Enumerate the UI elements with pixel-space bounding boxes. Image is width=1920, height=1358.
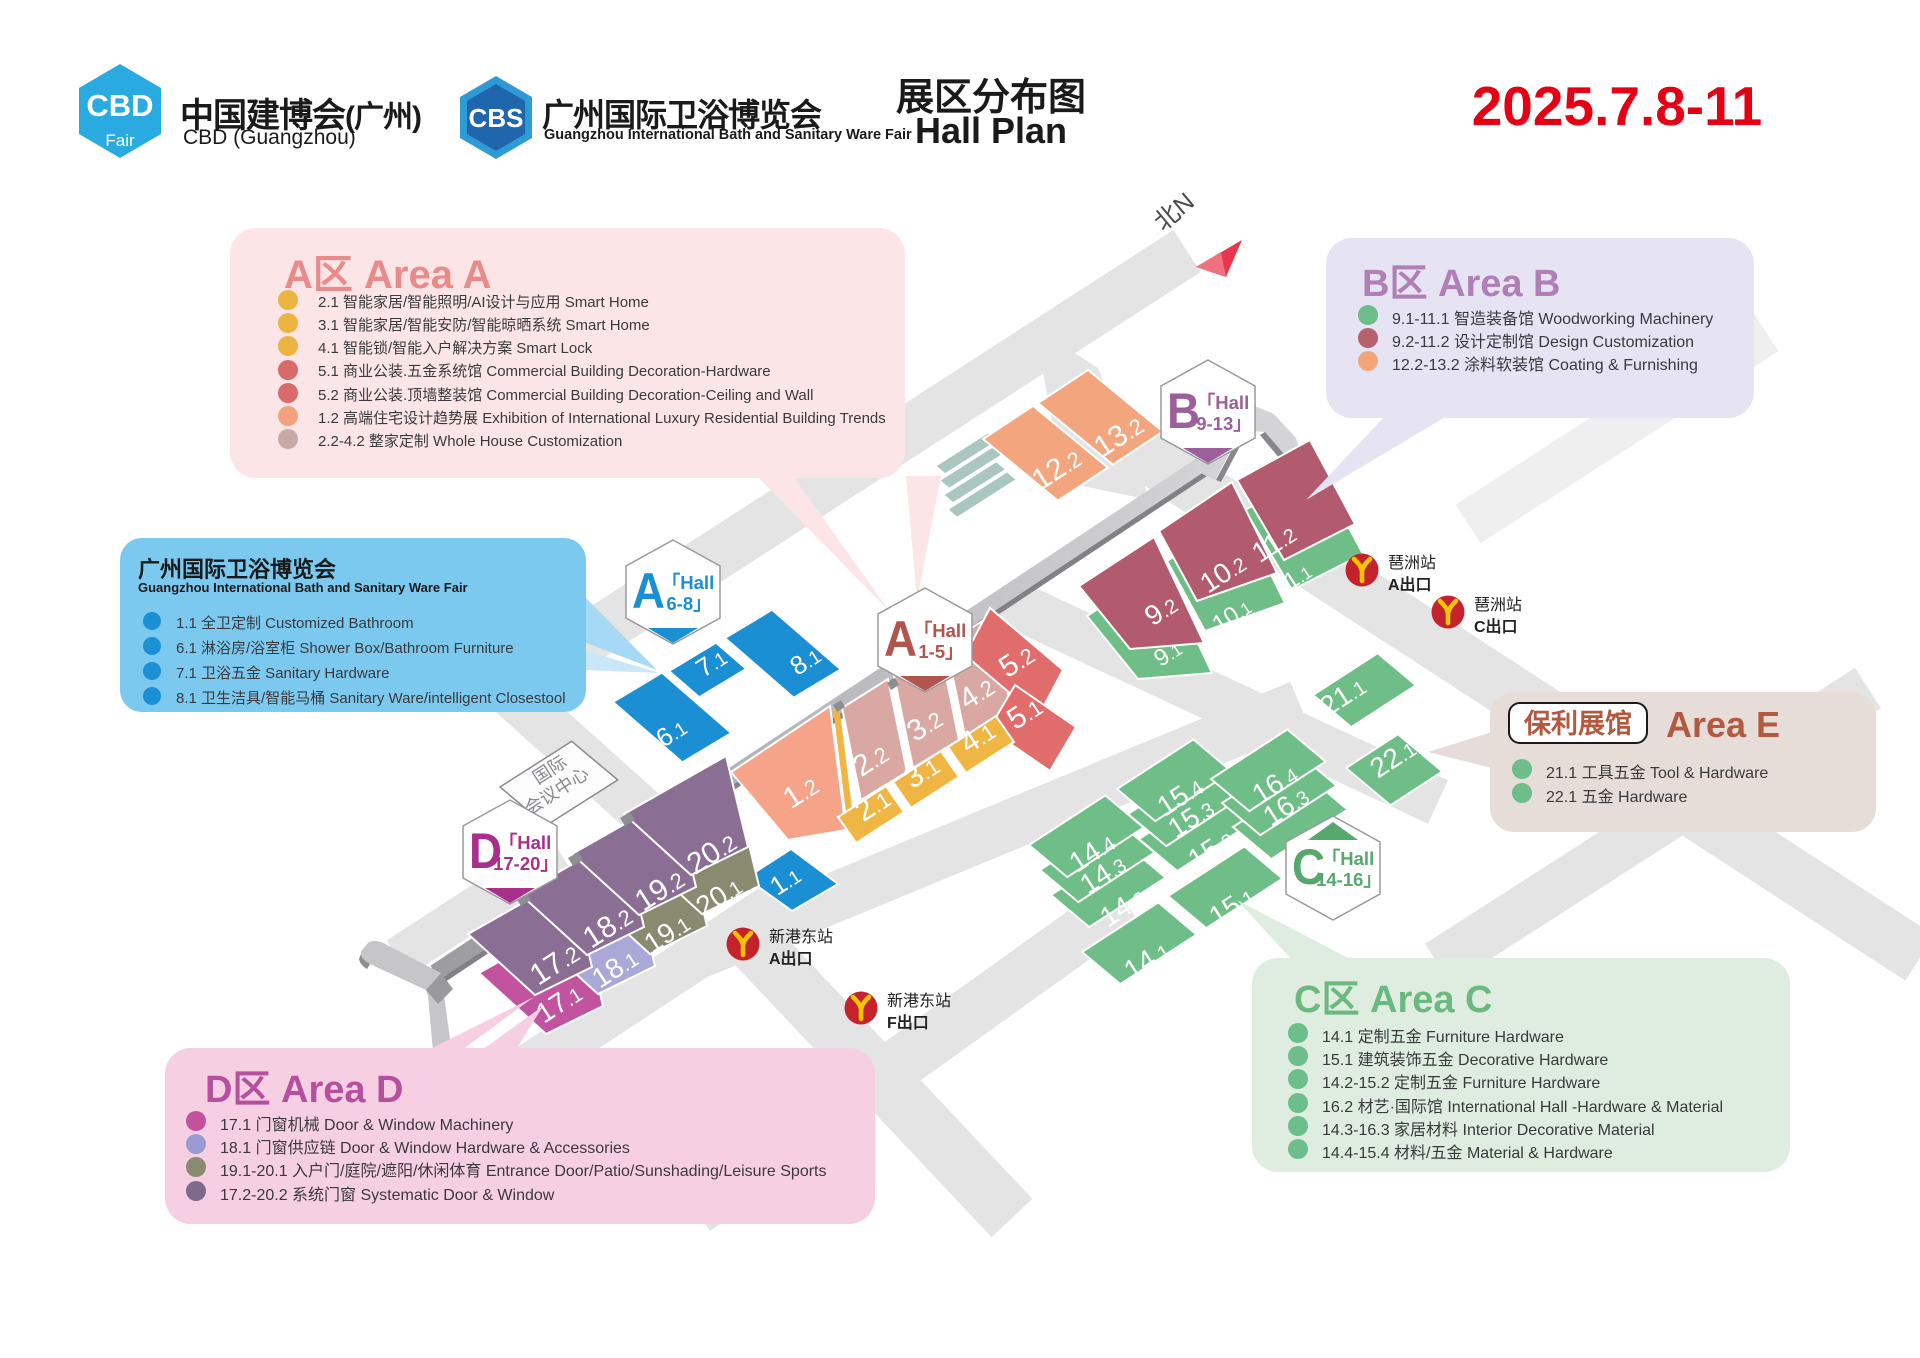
svg-text:「Hall: 「Hall: [499, 832, 551, 853]
svg-text:「Hall: 「Hall: [914, 620, 966, 641]
svg-text:6-8」: 6-8」: [666, 593, 711, 614]
svg-text:1-5」: 1-5」: [918, 641, 963, 662]
svg-text:A: A: [632, 563, 665, 619]
svg-text:17-20」: 17-20」: [493, 853, 559, 874]
svg-text:琶洲站: 琶洲站: [1474, 596, 1522, 614]
svg-text:F出口: F出口: [887, 1013, 929, 1032]
svg-text:「Hall: 「Hall: [1197, 392, 1249, 413]
svg-text:A: A: [884, 611, 917, 667]
svg-text:琶洲站: 琶洲站: [1388, 554, 1436, 572]
svg-text:「Hall: 「Hall: [662, 572, 714, 593]
svg-text:A出口: A出口: [769, 949, 813, 968]
svg-text:14-16」: 14-16」: [1316, 869, 1382, 890]
svg-text:Fair: Fair: [105, 131, 135, 150]
svg-text:A出口: A出口: [1388, 575, 1432, 594]
svg-text:9-13」: 9-13」: [1196, 413, 1252, 434]
svg-text:CBS: CBS: [469, 103, 524, 133]
svg-text:C出口: C出口: [1474, 617, 1518, 636]
svg-text:「Hall: 「Hall: [1322, 848, 1374, 869]
svg-text:B: B: [1167, 383, 1200, 439]
svg-text:新港东站: 新港东站: [769, 928, 833, 946]
svg-text:CBD: CBD: [86, 88, 153, 123]
svg-text:新港东站: 新港东站: [887, 992, 951, 1010]
